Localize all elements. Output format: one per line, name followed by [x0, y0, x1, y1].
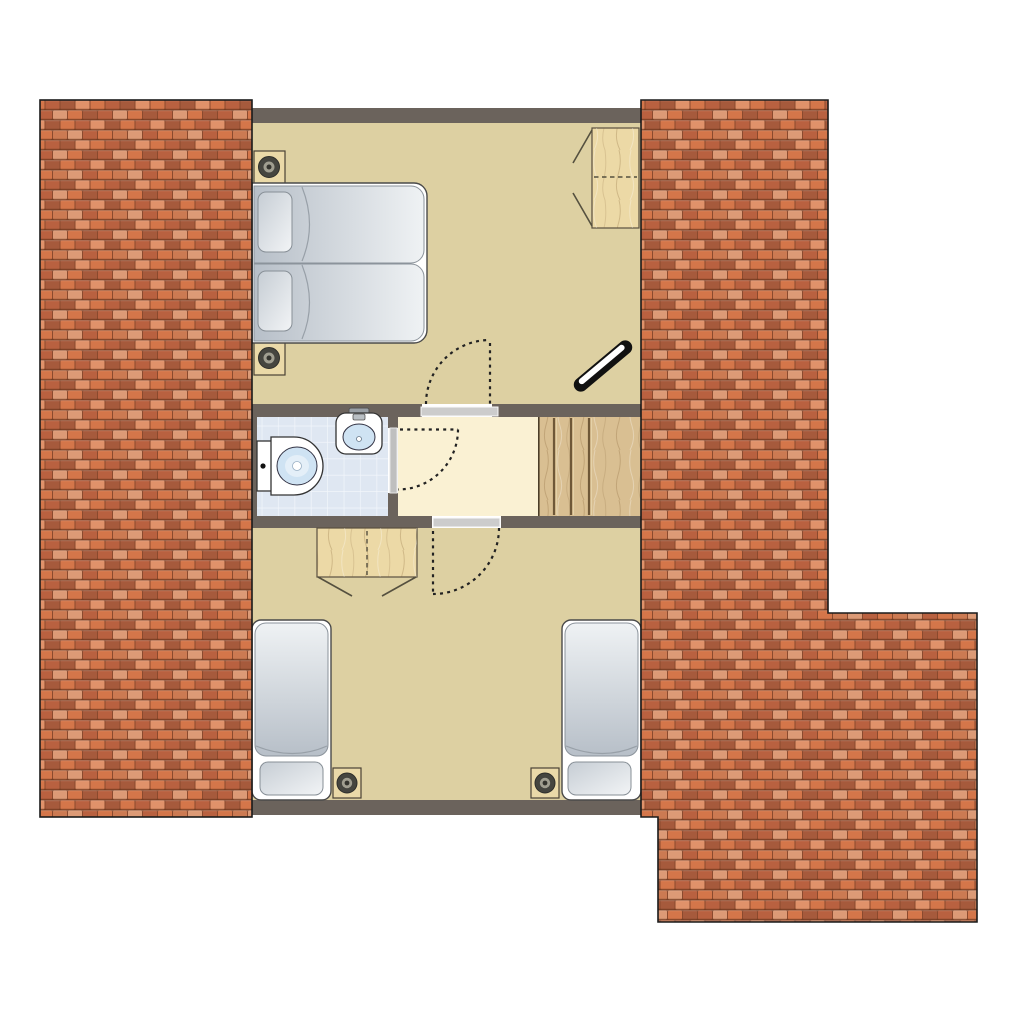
door-leaf	[390, 428, 397, 493]
wall-bathroom-right-upper	[388, 417, 398, 428]
toilet-icon	[257, 437, 323, 495]
lamp-icon	[535, 773, 555, 793]
floor-plan-page	[0, 0, 1024, 1024]
single-bed-right	[562, 620, 641, 800]
wall-top	[252, 108, 641, 123]
lamp-icon	[259, 157, 280, 178]
single-bed-left	[252, 620, 331, 800]
pillow	[260, 762, 323, 795]
pillow	[568, 762, 631, 795]
lamp-icon	[337, 773, 357, 793]
hallway-floor	[398, 417, 538, 516]
roof-left	[40, 100, 252, 817]
wall-mid-lower-right	[501, 516, 641, 528]
roof-right	[641, 100, 977, 922]
wall-mid-upper-right	[492, 404, 641, 417]
mattress	[255, 623, 328, 756]
lamp-icon	[259, 348, 280, 369]
pillow	[258, 271, 292, 331]
pillow	[258, 192, 292, 252]
washbasin-icon	[336, 408, 382, 454]
double-bed	[252, 183, 427, 343]
wall-mid-lower-left	[252, 516, 432, 528]
mattress	[565, 623, 638, 756]
wall-mid-upper-left	[252, 404, 422, 417]
wall-bathroom-right-lower	[388, 493, 398, 516]
wall-bottom	[252, 800, 641, 815]
floor-plan-canvas	[0, 0, 1024, 1024]
